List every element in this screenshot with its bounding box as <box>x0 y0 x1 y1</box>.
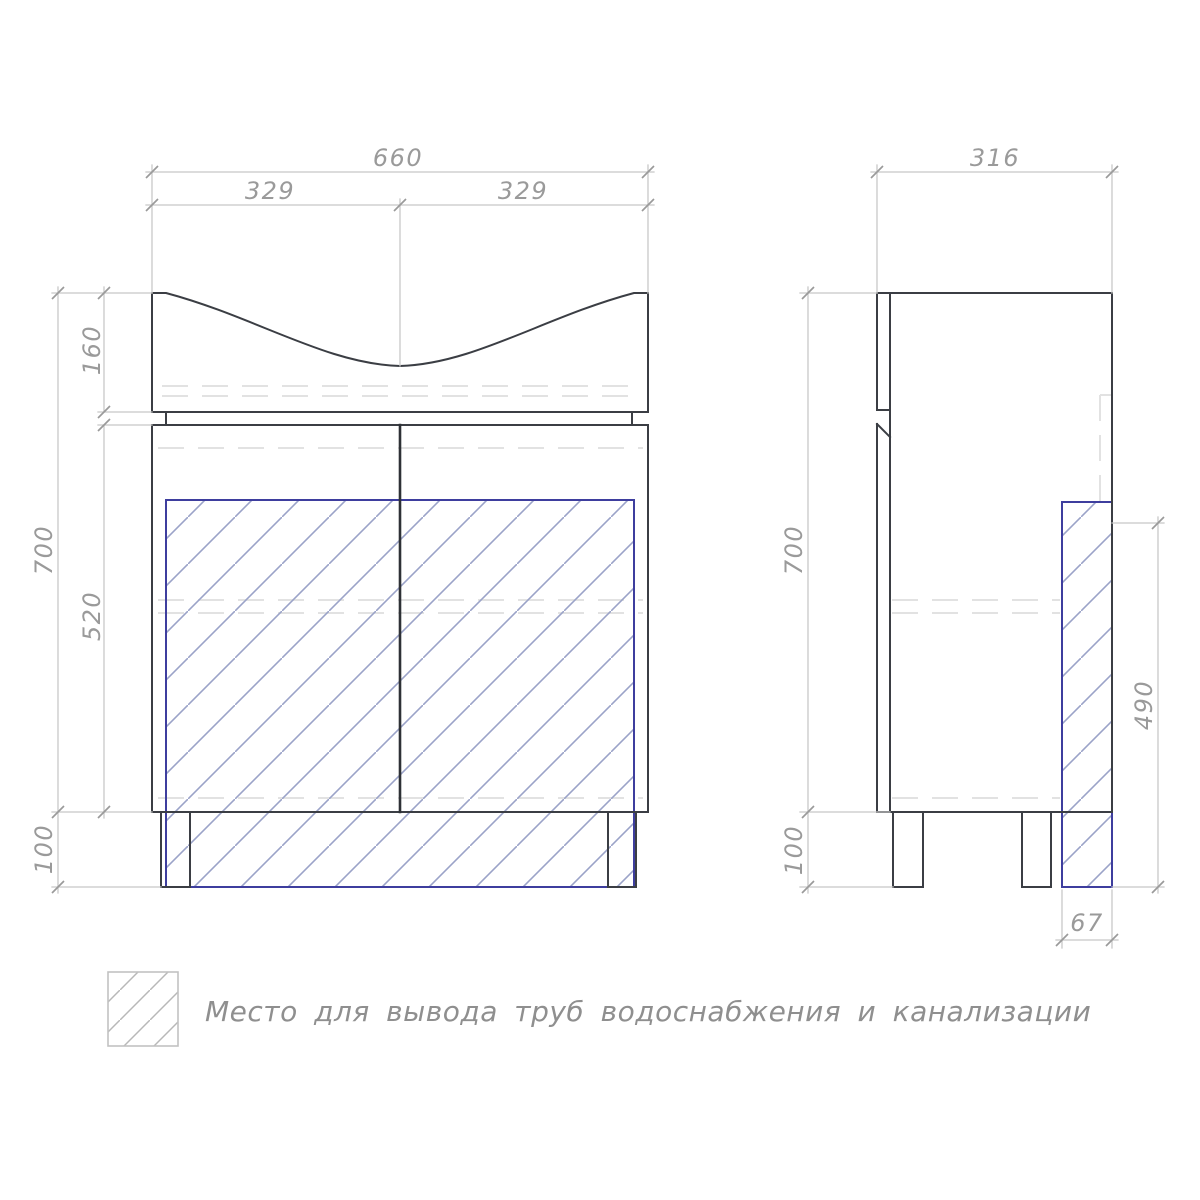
legend: Место для вывода труб водоснабжения и ка… <box>108 972 1091 1046</box>
side-legs-height-label: 100 <box>780 825 808 875</box>
front-top-dimensions: 660 329 329 <box>146 144 654 366</box>
side-rear-leg <box>1022 812 1051 887</box>
side-pipe-zone-height-label: 490 <box>1130 680 1158 730</box>
side-front-strip <box>877 293 890 812</box>
side-total-height-label: 700 <box>780 525 808 575</box>
front-legs-height-label: 100 <box>30 824 58 874</box>
front-total-height-label: 700 <box>30 525 58 575</box>
countertop-band <box>152 412 648 425</box>
front-view: 660 329 329 160 700 520 100 <box>30 144 654 893</box>
front-left-dimensions: 160 700 520 100 <box>30 287 161 893</box>
pipe-zone-hatch-side <box>1062 502 1112 887</box>
front-width-left-label: 329 <box>245 177 295 205</box>
side-pipe-zone-depth-label: 67 <box>1070 909 1104 937</box>
legend-label: Место для вывода труб водоснабжения и ка… <box>205 995 1091 1028</box>
front-cabinet-height-label: 520 <box>78 591 106 641</box>
side-right-dimensions: 490 <box>1112 517 1164 893</box>
vanity-dimension-drawing: 660 329 329 160 700 520 100 <box>0 0 1200 1200</box>
side-view: 316 700 100 490 67 <box>780 144 1164 948</box>
side-front-leg <box>893 812 923 887</box>
side-top-dimensions: 316 <box>871 144 1118 293</box>
front-basin-height-label: 160 <box>78 325 106 375</box>
side-bottom-dimensions: 67 <box>1056 890 1118 948</box>
front-width-total-label: 660 <box>373 144 423 172</box>
drawing-svg: 660 329 329 160 700 520 100 <box>0 0 1200 1200</box>
side-depth-total-label: 316 <box>970 144 1020 172</box>
legend-hatch-swatch-icon <box>108 972 178 1046</box>
side-legs <box>893 812 1051 887</box>
front-width-right-label: 329 <box>498 177 548 205</box>
